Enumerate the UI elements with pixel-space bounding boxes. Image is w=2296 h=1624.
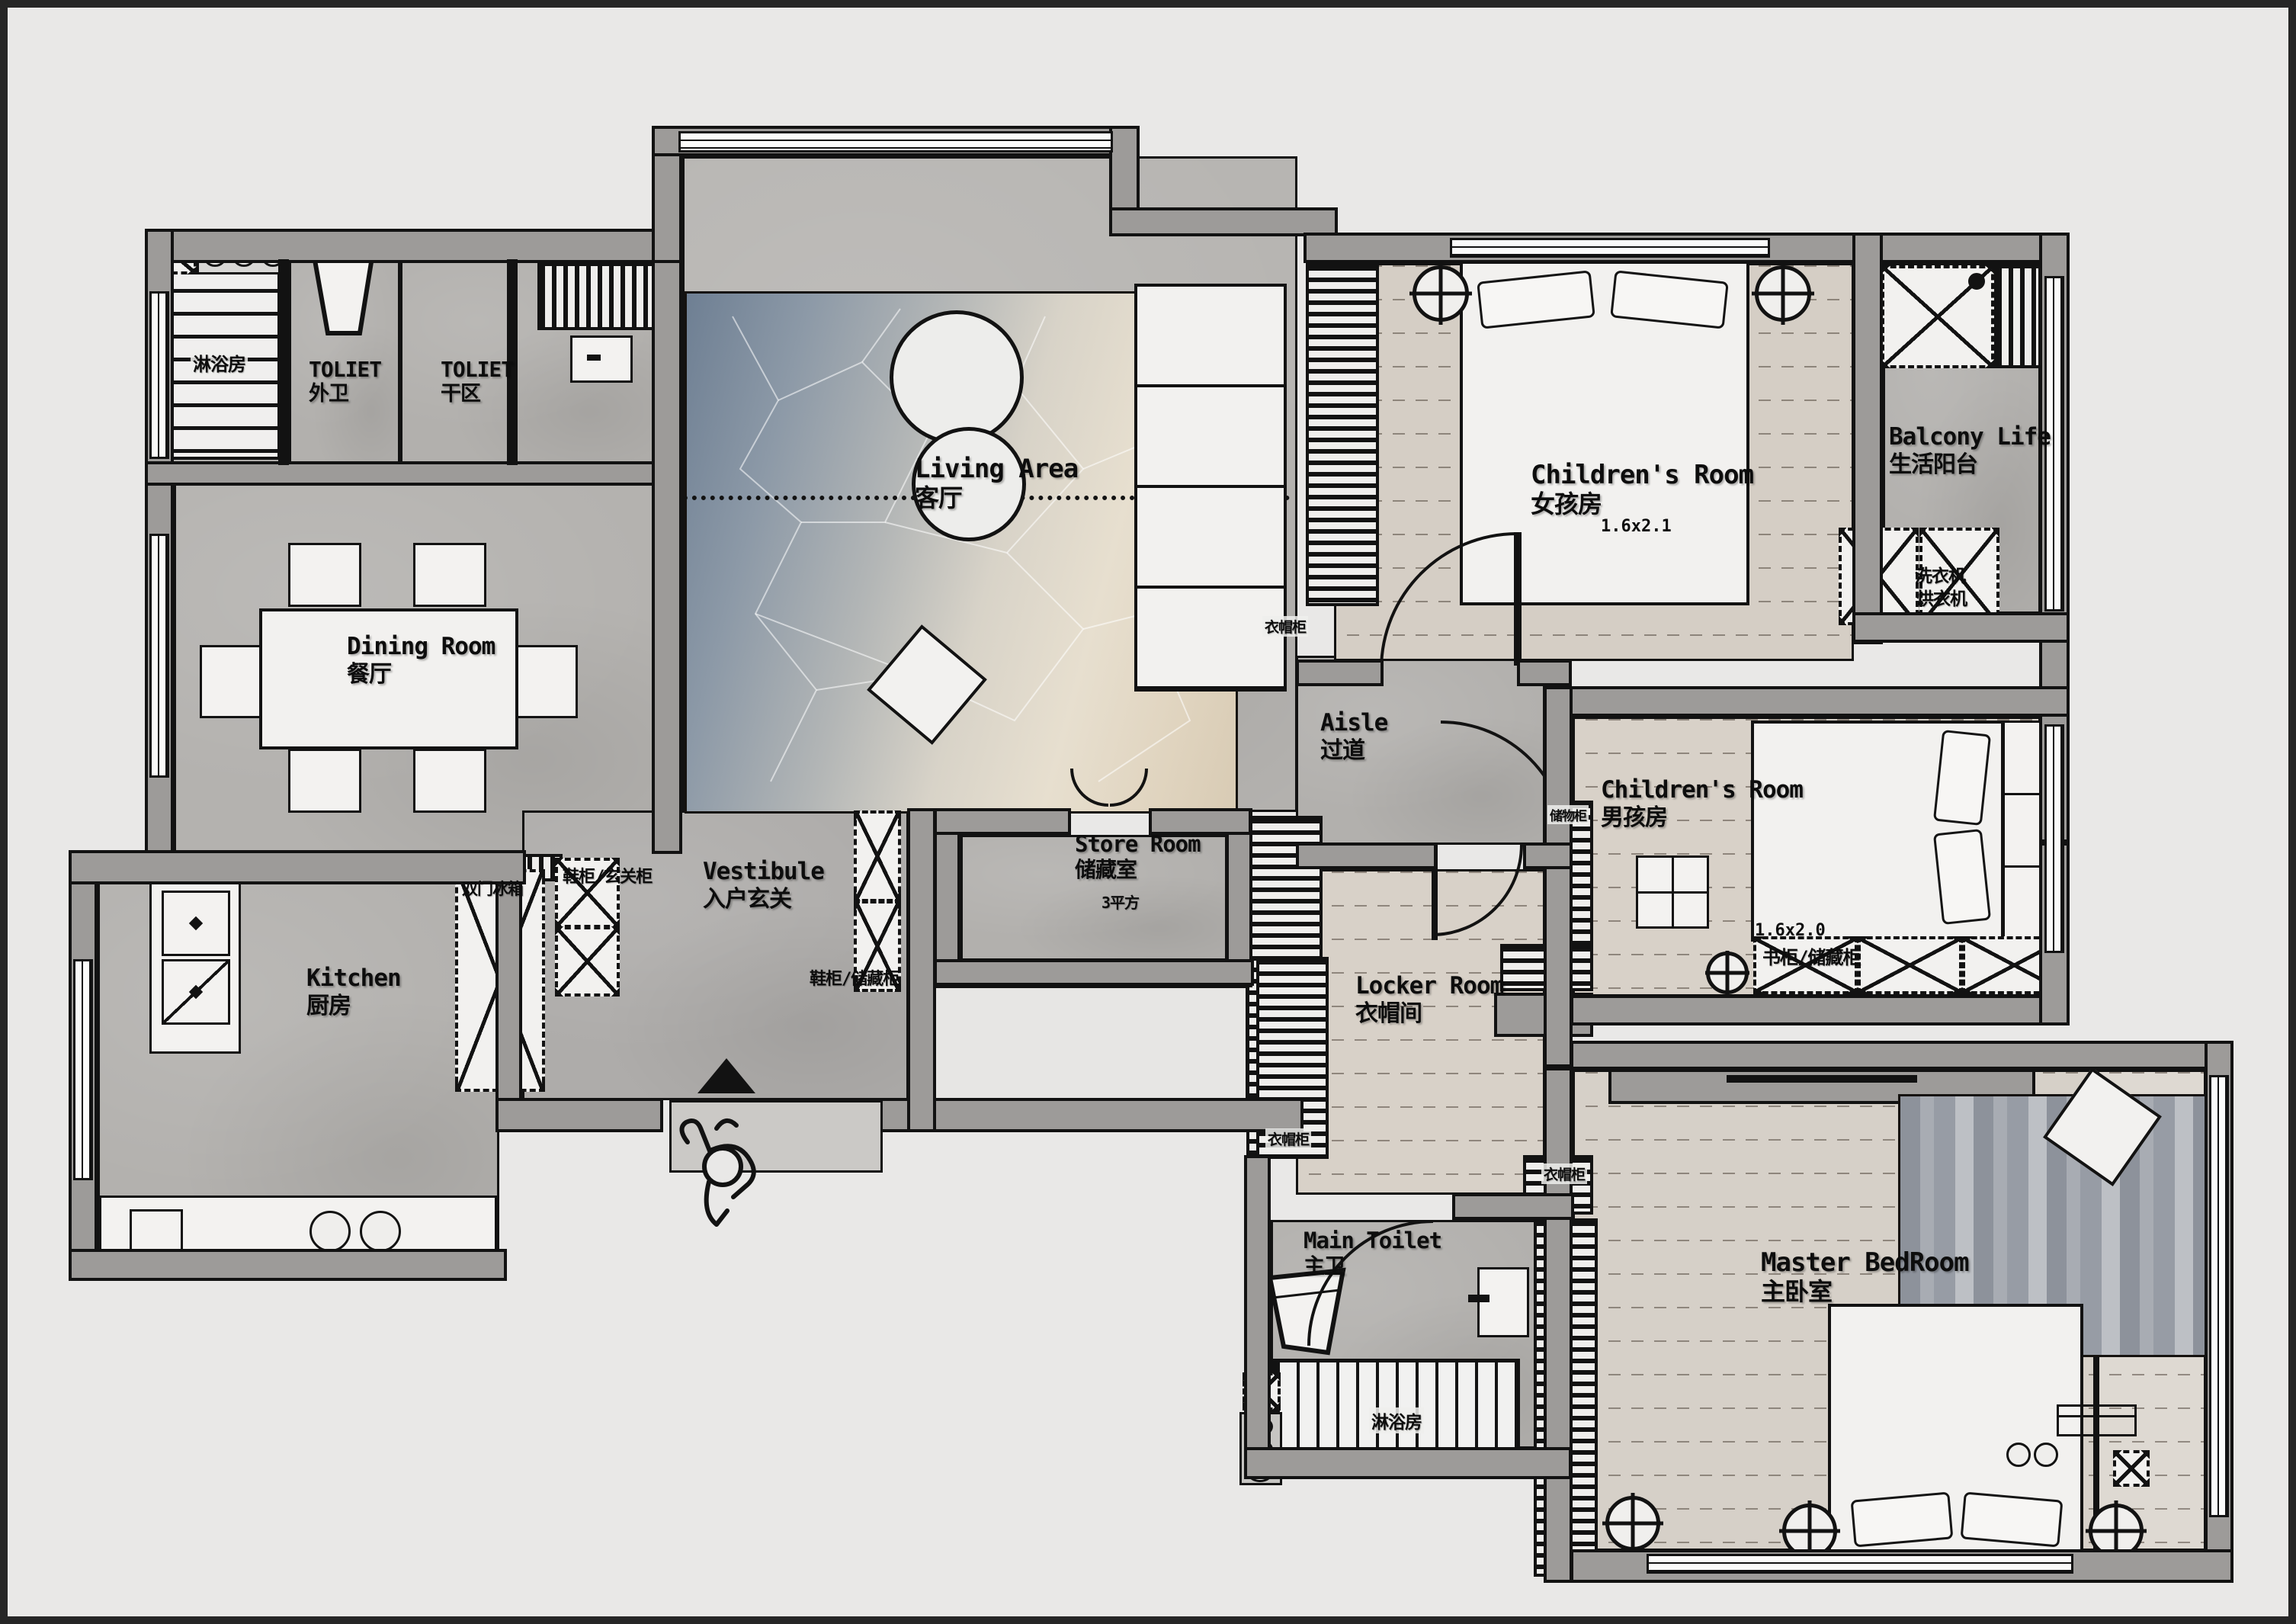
wall-segment — [1852, 233, 1883, 644]
panel-handle — [1468, 1295, 1490, 1302]
wall-segment — [69, 850, 526, 884]
bed-bench — [2057, 1404, 2137, 1436]
wall-segment — [495, 1098, 663, 1132]
label-toilet-dry-zh: 干区 — [441, 382, 513, 406]
label-washer: 洗衣机 — [1915, 561, 1965, 587]
label-locker-room: Locker Room 衣帽间 — [1355, 972, 1503, 1027]
label-main-toilet: Main Toilet 主卫 — [1304, 1228, 1441, 1279]
label-toilet-dry-en: TOLIET — [441, 357, 513, 382]
wall-segment — [907, 808, 936, 1132]
nightstand-lamp — [1413, 265, 1469, 322]
label-store-en: Store Room — [1075, 831, 1201, 857]
window — [2044, 724, 2064, 953]
pillow — [1933, 730, 1991, 826]
window — [2209, 1075, 2229, 1517]
label-storage-cabinet: 储物柜 — [1547, 805, 1589, 824]
partition-dry-zone — [398, 263, 402, 461]
window — [1450, 238, 1770, 258]
label-vestibule: Vestibule 入户玄关 — [703, 858, 824, 913]
label-kitchen-zh: 厨房 — [306, 993, 401, 1019]
wall-segment — [145, 461, 671, 486]
label-living-zh: 客厅 — [915, 484, 1078, 513]
label-aisle-zh: 过道 — [1320, 737, 1387, 764]
label-kitchen-en: Kitchen — [306, 964, 401, 993]
nightstand-lamp — [1706, 952, 1749, 994]
bedside-table-boys — [1636, 855, 1709, 929]
wall-segment — [934, 959, 1254, 986]
floor-plan-canvas: 淋浴房 TOLIET 外卫 TOLIET 干区 Living Area 客厅 C… — [0, 0, 2296, 1624]
window — [149, 534, 169, 778]
window — [73, 959, 93, 1180]
label-master-bedroom: Master BedRoom 主卧室 — [1761, 1247, 1969, 1307]
label-wardrobe-locker-left: 衣帽柜 — [1265, 1128, 1311, 1149]
label-boys-zh: 男孩房 — [1601, 804, 1803, 831]
bookcase-unit — [1858, 936, 1962, 994]
dining-chair — [413, 543, 486, 607]
label-store-area: 3平方 — [1102, 891, 1139, 913]
stove-burner-2 — [360, 1211, 401, 1252]
wall-segment — [1570, 1041, 2233, 1070]
label-main-toilet-en: Main Toilet — [1304, 1228, 1441, 1253]
wall-segment — [1296, 660, 1384, 686]
shoe-cabinet-store-upper — [854, 810, 901, 902]
label-master-en: Master BedRoom — [1761, 1247, 1969, 1278]
dining-chair — [288, 543, 361, 607]
label-dining-zh: 餐厅 — [347, 661, 495, 688]
label-dining: Dining Room 餐厅 — [347, 633, 495, 688]
tv-screen — [1727, 1075, 1917, 1083]
decor-circle — [2006, 1443, 2031, 1467]
label-living-en: Living Area — [915, 454, 1078, 484]
pillow — [1961, 1491, 2064, 1547]
label-vestibule-en: Vestibule — [703, 858, 824, 886]
nightstand-lamp — [1755, 265, 1811, 322]
label-locker-zh: 衣帽间 — [1355, 1000, 1503, 1027]
label-boys-bed-dim: 1.6x2.0 — [1755, 921, 1826, 940]
wall-segment — [1544, 686, 2070, 717]
label-store-room: Store Room 储藏室 — [1075, 831, 1201, 882]
wall-segment — [1523, 842, 1573, 869]
pillow — [1933, 829, 1991, 925]
label-girls-room: Children's Room 女孩房 — [1531, 460, 1753, 519]
person-figure — [672, 1096, 771, 1249]
partition-shower — [278, 259, 289, 465]
label-locker-en: Locker Room — [1355, 972, 1503, 1000]
label-toilet-outer-en: TOLIET — [309, 357, 381, 382]
label-wardrobe-girls: 衣帽柜 — [1262, 616, 1308, 637]
dining-chair — [200, 645, 264, 718]
label-boys-en: Children's Room — [1601, 776, 1803, 804]
label-toilet-outer: TOLIET 外卫 — [309, 357, 381, 406]
label-dryer: 烘衣机 — [1916, 584, 1967, 610]
label-toilet-dry: TOLIET 干区 — [441, 357, 513, 406]
dining-chair — [288, 749, 361, 813]
cabinet-toilet-passage — [537, 263, 665, 330]
label-girls-zh: 女孩房 — [1531, 490, 1753, 519]
floor-drain-box — [2113, 1450, 2150, 1487]
label-girls-en: Children's Room — [1531, 460, 1753, 490]
stove-burner-1 — [309, 1211, 351, 1252]
label-main-toilet-zh: 主卫 — [1304, 1253, 1441, 1279]
wall-segment — [934, 808, 1071, 835]
wall-segment — [1244, 1447, 1572, 1479]
label-living-area: Living Area 客厅 — [915, 454, 1078, 513]
label-shower-main: 淋浴房 — [1369, 1407, 1424, 1433]
label-girls-bed-dim: 1.6x2.1 — [1601, 517, 1672, 536]
pillow — [1851, 1491, 1954, 1547]
balcony-folding-door — [1994, 265, 2041, 368]
decor-circle — [2034, 1443, 2058, 1467]
wall-segment — [652, 229, 682, 854]
mirror-door-panel — [570, 335, 633, 383]
wall-segment — [1544, 1067, 1573, 1583]
window — [678, 131, 1113, 152]
nightstand-lamp — [1605, 1496, 1660, 1551]
label-fridge: 双门冰箱 — [462, 877, 523, 900]
kitchen-sink — [162, 891, 230, 956]
label-toilet-outer-zh: 外卫 — [309, 382, 381, 406]
coffee-table-large — [890, 310, 1024, 445]
dining-chair — [514, 645, 578, 718]
wall-segment — [1244, 1155, 1271, 1479]
wall-segment — [69, 1249, 507, 1281]
wall-segment — [1296, 842, 1437, 869]
label-shoe-store-cabinet: 鞋柜/储藏柜 — [810, 965, 899, 990]
entrance-arrow-icon — [697, 1058, 755, 1093]
label-aisle: Aisle 过道 — [1320, 709, 1387, 764]
shoe-cabinet-entry-lower — [555, 926, 620, 997]
label-aisle-en: Aisle — [1320, 709, 1387, 737]
wardrobe-girls — [1306, 263, 1379, 606]
wall-segment — [1452, 1193, 1574, 1220]
label-vestibule-zh: 入户玄关 — [703, 886, 824, 913]
label-master-zh: 主卧室 — [1761, 1278, 1969, 1307]
label-balcony-en: Balcony Life — [1889, 423, 2051, 451]
window — [149, 291, 169, 459]
floor-drain — [1968, 273, 1985, 290]
label-shower-top: 淋浴房 — [191, 349, 248, 376]
wall-segment — [877, 1098, 1304, 1132]
label-wardrobe-locker-right: 衣帽柜 — [1541, 1163, 1587, 1184]
label-balcony: Balcony Life 生活阳台 — [1889, 423, 2051, 478]
label-boys-room: Children's Room 男孩房 — [1601, 776, 1803, 831]
label-balcony-zh: 生活阳台 — [1889, 451, 2051, 478]
wall-segment — [1570, 995, 2070, 1025]
label-kitchen: Kitchen 厨房 — [306, 964, 401, 1019]
label-shoe-entry-cabinet: 鞋柜/玄关柜 — [563, 863, 652, 887]
panel-handle — [587, 355, 601, 361]
dining-chair — [413, 749, 486, 813]
wall-segment — [145, 229, 671, 263]
floor-closet-under-store — [934, 986, 1248, 1100]
wall-segment — [1544, 686, 1573, 1067]
toilet-door-panel — [1477, 1267, 1529, 1337]
window — [1647, 1554, 2073, 1574]
wall-segment — [1517, 660, 1572, 686]
kitchen-prep-board — [162, 959, 230, 1025]
wall-segment — [1852, 612, 2070, 643]
label-store-zh: 储藏室 — [1075, 857, 1201, 882]
label-dining-en: Dining Room — [347, 633, 495, 661]
label-bookcase: 书柜/储藏柜 — [1762, 942, 1860, 969]
